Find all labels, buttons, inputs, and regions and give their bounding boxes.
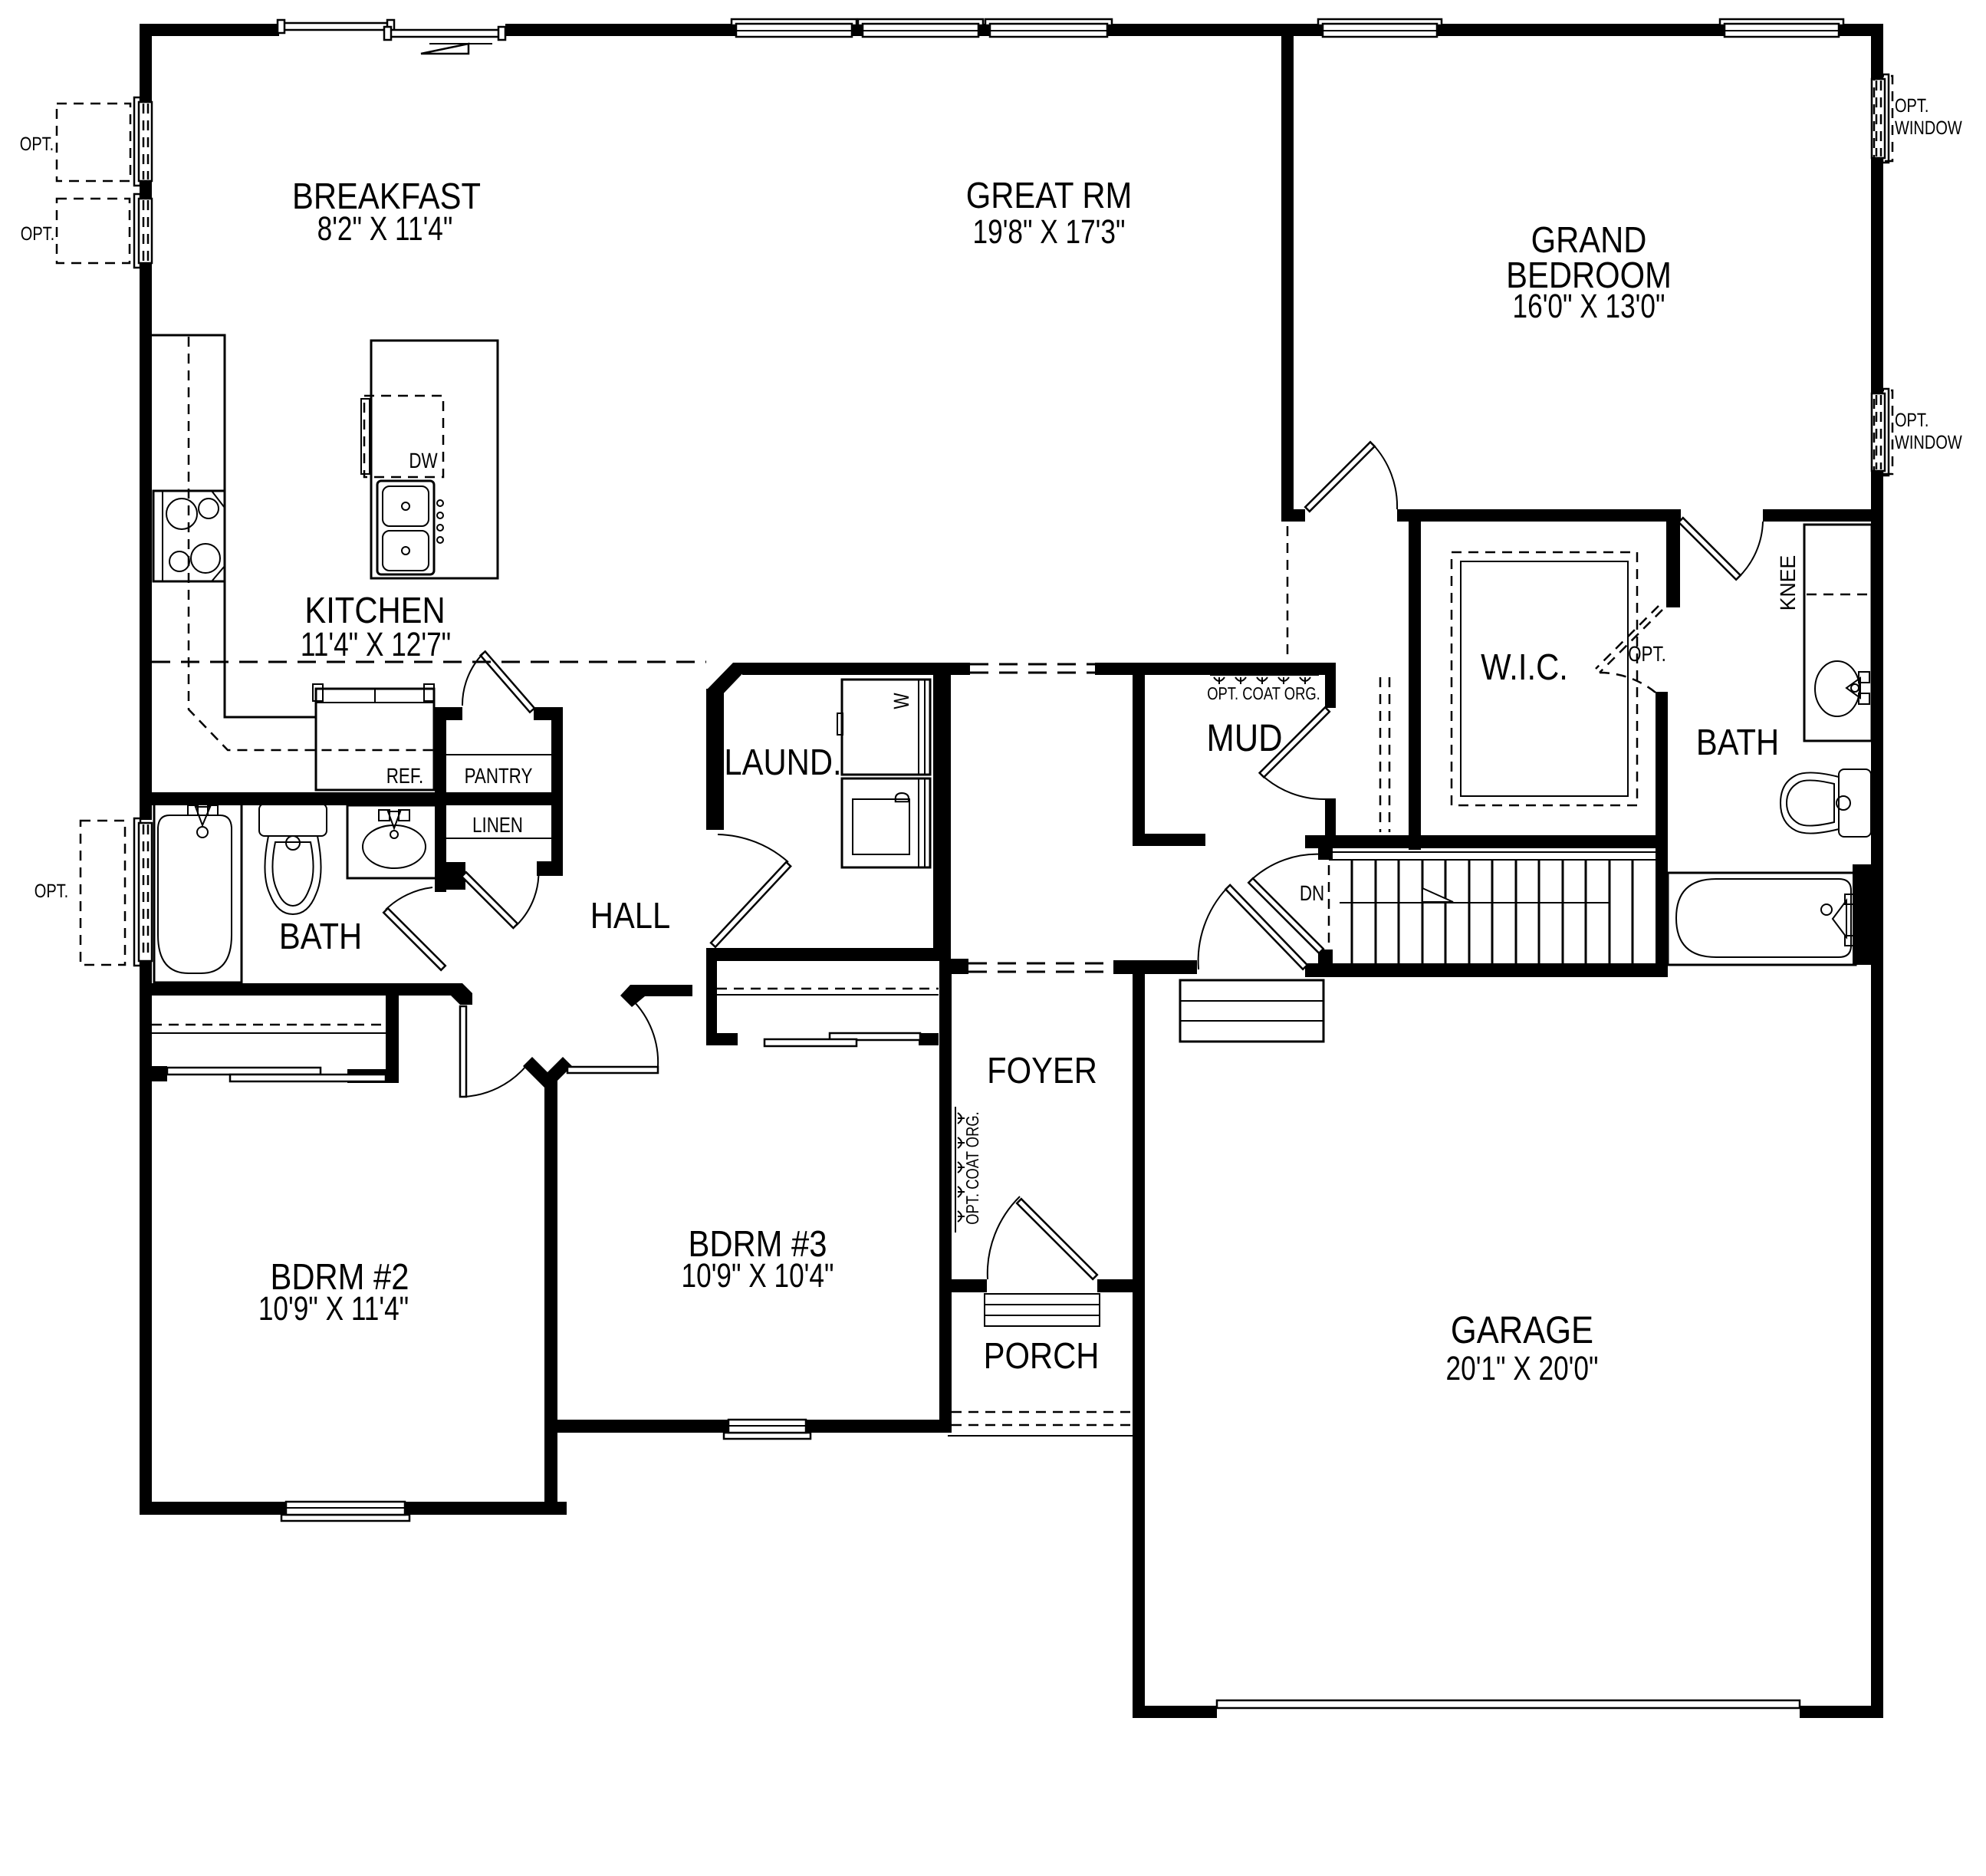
- svg-text:REF.: REF.: [386, 764, 424, 788]
- svg-text:OPT.: OPT.: [1628, 642, 1666, 666]
- svg-text:16'0" X 13'0": 16'0" X 13'0": [1513, 288, 1665, 325]
- svg-text:OPT.: OPT.: [35, 880, 68, 902]
- svg-text:OPT. COAT ORG.: OPT. COAT ORG.: [1207, 683, 1320, 703]
- svg-text:OPT.: OPT.: [1895, 95, 1928, 117]
- svg-text:20'1" X 20'0": 20'1" X 20'0": [1446, 1350, 1599, 1387]
- svg-text:HALL: HALL: [590, 896, 670, 936]
- svg-text:BATH: BATH: [279, 917, 362, 957]
- svg-text:11'4" X 12'7": 11'4" X 12'7": [301, 626, 451, 663]
- svg-text:W: W: [889, 693, 913, 709]
- svg-text:BATH: BATH: [1696, 722, 1779, 763]
- svg-text:FOYER: FOYER: [987, 1051, 1097, 1091]
- svg-text:OPT.: OPT.: [21, 223, 54, 245]
- svg-text:LAUND.: LAUND.: [724, 742, 841, 783]
- svg-text:DN: DN: [1300, 881, 1324, 905]
- svg-text:WINDOW: WINDOW: [1895, 117, 1962, 139]
- svg-text:OPT.: OPT.: [1895, 410, 1928, 431]
- svg-text:OPT.: OPT.: [20, 133, 54, 155]
- svg-text:GARAGE: GARAGE: [1451, 1308, 1593, 1351]
- svg-text:8'2" X 11'4": 8'2" X 11'4": [317, 210, 453, 248]
- svg-text:19'8" X 17'3": 19'8" X 17'3": [973, 213, 1126, 251]
- svg-text:KNEE: KNEE: [1776, 555, 1800, 611]
- svg-text:DW: DW: [409, 449, 438, 472]
- svg-text:W.I.C.: W.I.C.: [1481, 647, 1568, 688]
- svg-text:OPT. COAT ORG.: OPT. COAT ORG.: [962, 1111, 982, 1225]
- svg-text:PANTRY: PANTRY: [465, 764, 533, 788]
- svg-text:D: D: [890, 792, 914, 804]
- svg-text:MUD: MUD: [1206, 716, 1282, 759]
- svg-text:LINEN: LINEN: [472, 813, 523, 837]
- svg-text:PORCH: PORCH: [984, 1336, 1100, 1377]
- svg-text:GREAT RM: GREAT RM: [966, 176, 1133, 216]
- svg-text:WINDOW: WINDOW: [1895, 432, 1962, 453]
- svg-text:10'9" X 10'4": 10'9" X 10'4": [682, 1257, 834, 1295]
- svg-text:10'9" X 11'4": 10'9" X 11'4": [258, 1290, 409, 1328]
